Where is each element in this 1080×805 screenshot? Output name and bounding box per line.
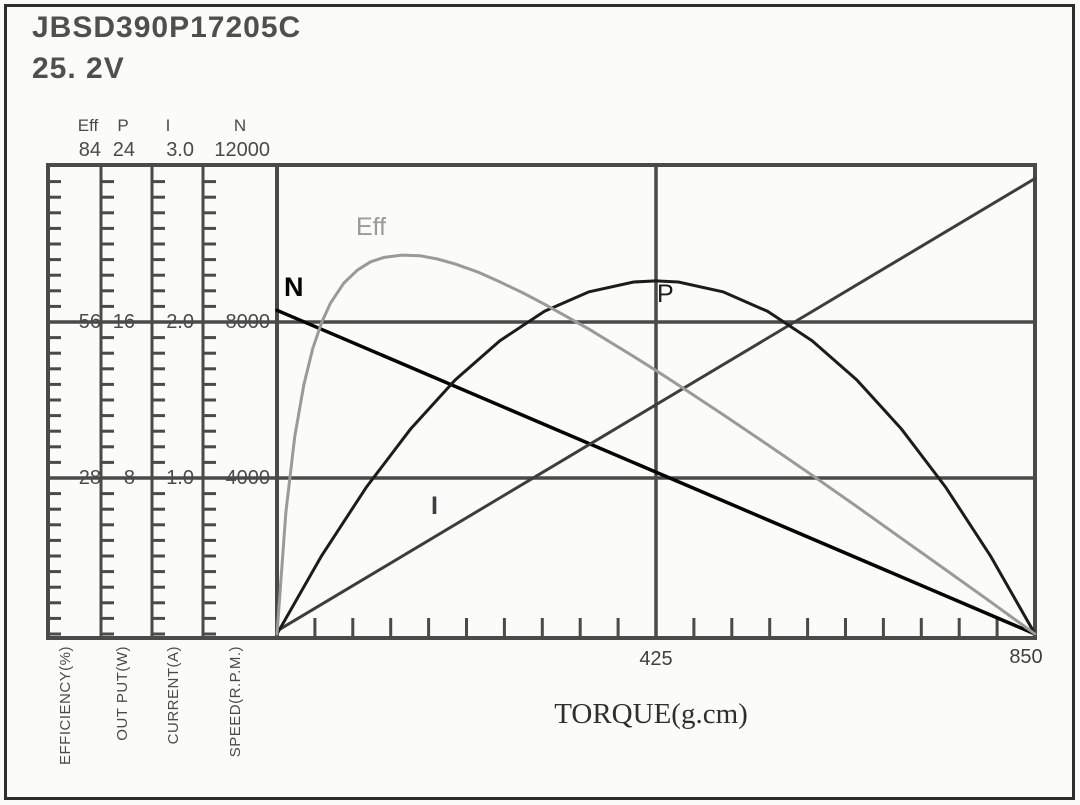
axis-caption-n: SPEED(R.P.M.) — [227, 646, 244, 757]
x-tick-label-425: 425 — [639, 648, 672, 671]
axis-max-i: 3.0 — [124, 139, 194, 162]
axis-mid-n: 8000 — [200, 311, 270, 334]
chart-frame — [48, 165, 1035, 638]
axis-low-i: 1.0 — [124, 467, 194, 490]
curve-label-P: P — [657, 280, 674, 309]
x-axis-title: TORQUE(g.cm) — [554, 698, 748, 731]
axis-low-n: 4000 — [200, 467, 270, 490]
axis-name-eff: Eff — [78, 116, 98, 136]
axis-max-n: 12000 — [200, 139, 270, 162]
motor-performance-sheet: JBSD390P17205C 25. 2V Eff845628EFFICIENC… — [0, 0, 1080, 805]
curve-label-Eff: Eff — [356, 213, 386, 242]
axis-name-i: I — [166, 116, 171, 136]
model-number-title: JBSD390P17205C — [32, 11, 301, 45]
performance-chart — [0, 0, 1080, 805]
voltage-title: 25. 2V — [32, 52, 125, 86]
axis-name-n: N — [234, 116, 246, 136]
axis-name-p: P — [117, 116, 128, 136]
x-tick-label-850: 850 — [1009, 646, 1042, 669]
axis-caption-i: CURRENT(A) — [165, 646, 182, 744]
axis-mid-i: 2.0 — [124, 311, 194, 334]
curve-label-N: N — [284, 272, 304, 303]
axis-caption-eff: EFFICIENCY(%) — [57, 646, 74, 765]
axis-caption-p: OUT PUT(W) — [114, 646, 131, 741]
curve-label-I: I — [431, 492, 438, 521]
